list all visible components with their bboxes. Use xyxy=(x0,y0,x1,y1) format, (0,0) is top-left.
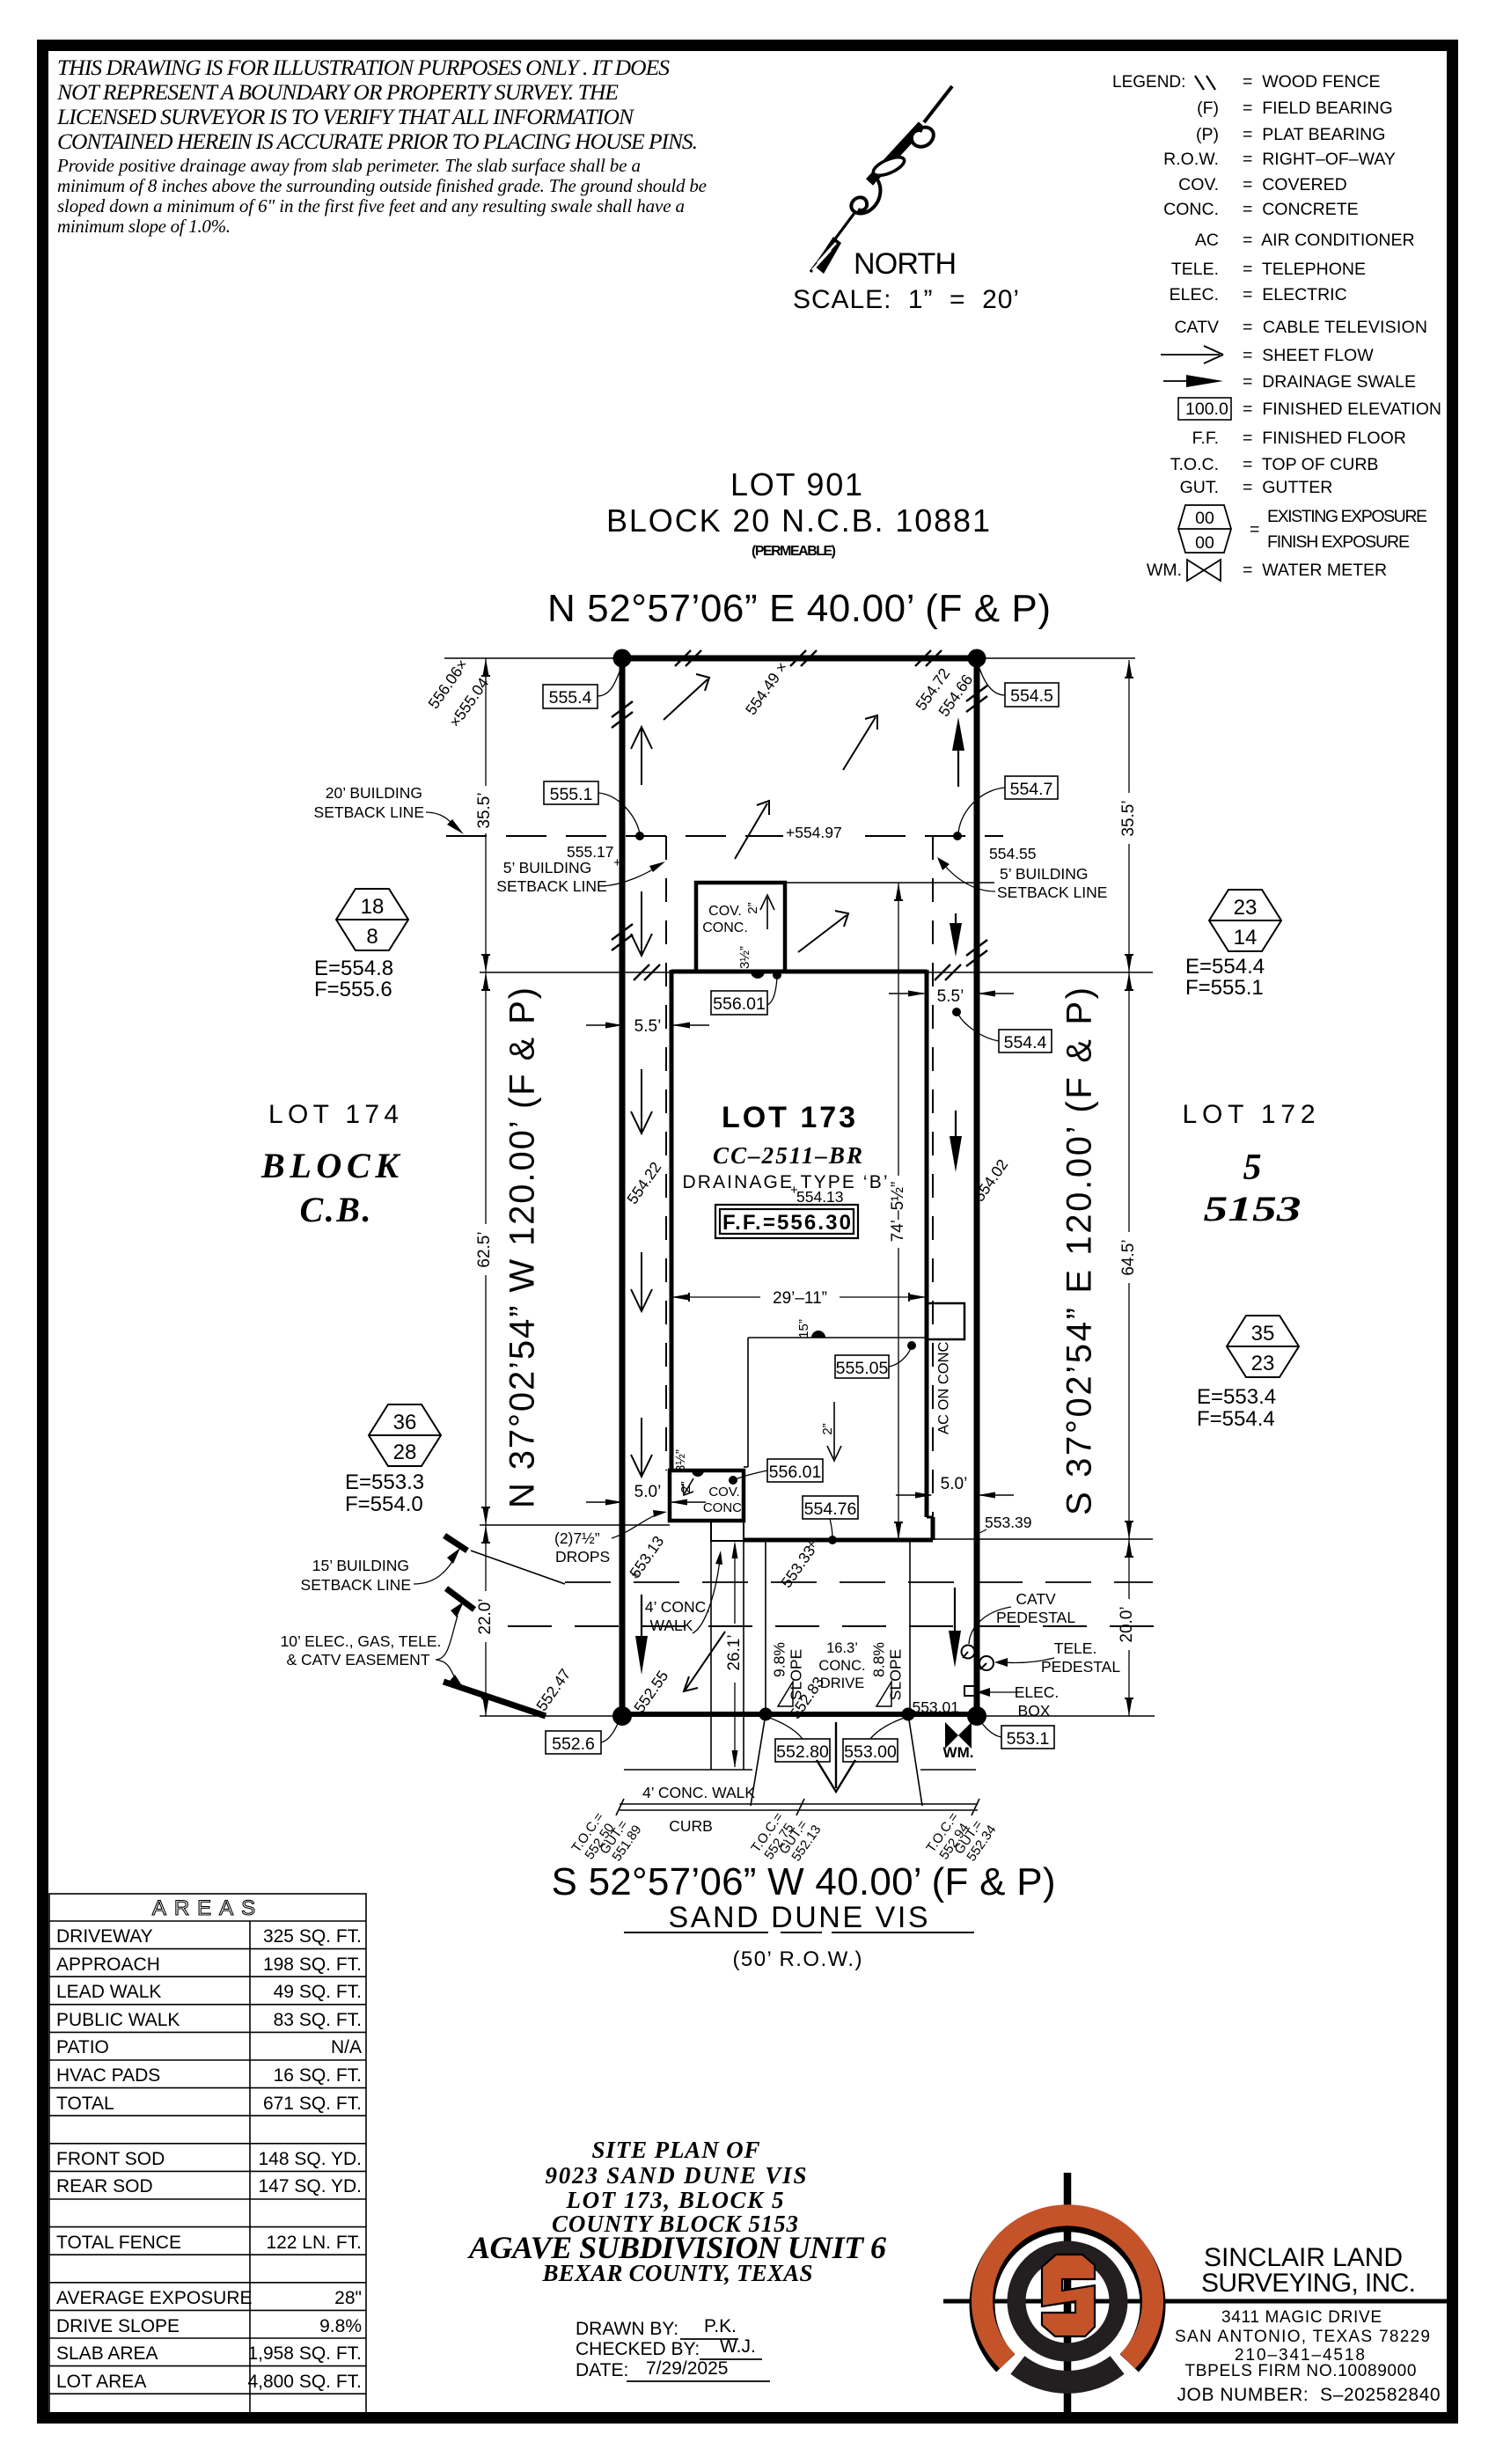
svg-text:00: 00 xyxy=(1195,509,1214,528)
svg-text:4’ CONC. WALK: 4’ CONC. WALK xyxy=(642,1784,755,1801)
svg-text:5.0’: 5.0’ xyxy=(634,1483,662,1501)
svg-text:CONC.: CONC. xyxy=(1163,200,1219,219)
svg-text:P.K.: P.K. xyxy=(704,2316,737,2336)
svg-text:DRAWN BY:: DRAWN BY: xyxy=(576,2319,678,2339)
svg-text:LOT 172: LOT 172 xyxy=(1183,1100,1316,1129)
svg-text:AC ON CONC.: AC ON CONC. xyxy=(935,1338,951,1434)
svg-text:15”: 15” xyxy=(796,1319,811,1338)
svg-text:E=554.4: E=554.4 xyxy=(1185,955,1265,979)
svg-text:CHECKED BY:: CHECKED BY: xyxy=(576,2339,700,2359)
svg-text:minimum of 8 inches above the: minimum of 8 inches above the surroundin… xyxy=(57,175,707,196)
svg-text:554.76: 554.76 xyxy=(804,1500,857,1519)
svg-text:DATE:: DATE: xyxy=(576,2360,628,2380)
svg-text:BOX: BOX xyxy=(1018,1702,1051,1720)
svg-text:555.17: 555.17 xyxy=(567,843,614,861)
svg-text:35.5’: 35.5’ xyxy=(1119,800,1138,836)
svg-text:2”: 2” xyxy=(678,1481,693,1492)
svg-text:= WATER METER: = WATER METER xyxy=(1243,561,1387,580)
svg-text:SCALE: 1” = 20’: SCALE: 1” = 20’ xyxy=(793,285,1019,314)
svg-text:TELE.: TELE. xyxy=(1054,1639,1097,1657)
svg-text:8: 8 xyxy=(366,925,378,949)
svg-text:18: 18 xyxy=(361,895,385,919)
svg-text:SETBACK LINE: SETBACK LINE xyxy=(496,877,606,895)
svg-text:= ELECTRIC: = ELECTRIC xyxy=(1243,285,1347,304)
svg-text:DROPS: DROPS xyxy=(555,1548,610,1566)
svg-text:COV.: COV. xyxy=(708,904,742,919)
svg-text:SETBACK LINE: SETBACK LINE xyxy=(301,1576,411,1594)
svg-text:CATV: CATV xyxy=(1016,1590,1056,1608)
svg-text:R.O.W.: R.O.W. xyxy=(1163,150,1219,169)
svg-text:9.8%: 9.8% xyxy=(319,2316,362,2336)
svg-text:PEDESTAL: PEDESTAL xyxy=(1041,1658,1120,1676)
svg-text:E=553.4: E=553.4 xyxy=(1197,1385,1276,1409)
svg-text:3½”: 3½” xyxy=(673,1449,688,1472)
svg-text:= AIR CONDITIONER: = AIR CONDITIONER xyxy=(1243,231,1415,250)
svg-text:35: 35 xyxy=(1251,1322,1275,1346)
svg-text:Provide positive drainage away: Provide positive drainage away from slab… xyxy=(56,155,641,176)
svg-text:20’ BUILDING: 20’ BUILDING xyxy=(326,784,422,802)
svg-text:= RIGHT–OF–WAY: = RIGHT–OF–WAY xyxy=(1243,150,1396,169)
svg-text:APPROACH: APPROACH xyxy=(56,1954,160,1975)
svg-text:TELE.: TELE. xyxy=(1171,260,1219,279)
svg-text:= SHEET FLOW: = SHEET FLOW xyxy=(1243,346,1374,365)
svg-text:20.0’: 20.0’ xyxy=(1118,1606,1136,1642)
svg-text:SITE PLAN OF: SITE PLAN OF xyxy=(592,2137,760,2163)
svg-text:555.05: 555.05 xyxy=(836,1359,889,1378)
svg-text:10’ ELEC., GAS, TELE.: 10’ ELEC., GAS, TELE. xyxy=(281,1632,442,1650)
svg-text:GUT.: GUT. xyxy=(1180,478,1219,497)
svg-text:FINISH EXPOSURE: FINISH EXPOSURE xyxy=(1267,532,1410,552)
svg-text:SURVEYING, INC.: SURVEYING, INC. xyxy=(1201,2269,1416,2298)
svg-text:LICENSED SURVEYOR IS TO VERIFY: LICENSED SURVEYOR IS TO VERIFY THAT ALL … xyxy=(56,104,635,129)
svg-text:LOT 173: LOT 173 xyxy=(722,1101,855,1134)
svg-text:= TELEPHONE: = TELEPHONE xyxy=(1243,260,1366,279)
svg-text:CONC.: CONC. xyxy=(702,920,748,935)
svg-text:3½”: 3½” xyxy=(737,946,752,969)
svg-text:555.4: 555.4 xyxy=(549,688,592,708)
svg-text:9.8%: 9.8% xyxy=(771,1642,788,1677)
svg-text:554.4: 554.4 xyxy=(1004,1033,1047,1052)
svg-text:= DRAINAGE SWALE: = DRAINAGE SWALE xyxy=(1243,372,1416,392)
svg-text:S 37°02’54” E 120.00’ (F & P): S 37°02’54” E 120.00’ (F & P) xyxy=(1060,987,1099,1515)
svg-text:5153: 5153 xyxy=(1204,1189,1302,1228)
svg-text:LOT 174: LOT 174 xyxy=(268,1100,399,1129)
svg-text:7/29/2025: 7/29/2025 xyxy=(646,2358,728,2379)
svg-text:16 SQ. FT.: 16 SQ. FT. xyxy=(274,2065,362,2086)
svg-text:= GUTTER: = GUTTER xyxy=(1243,478,1332,497)
svg-text:= CABLE TELEVISION: = CABLE TELEVISION xyxy=(1243,318,1427,337)
svg-text:N 52°57’06” E 40.00’ (F & P): N 52°57’06” E 40.00’ (F & P) xyxy=(547,587,1051,630)
svg-text:LOT 173, BLOCK 5: LOT 173, BLOCK 5 xyxy=(566,2187,784,2213)
svg-text:5’ BUILDING: 5’ BUILDING xyxy=(503,859,592,876)
svg-text:F.F.: F.F. xyxy=(1192,429,1219,448)
svg-text:EXISTING EXPOSURE: EXISTING EXPOSURE xyxy=(1267,507,1427,526)
svg-text:TBPELS FIRM NO.10089000: TBPELS FIRM NO.10089000 xyxy=(1185,2362,1417,2380)
svg-text:148 SQ. YD.: 148 SQ. YD. xyxy=(258,2149,362,2169)
svg-text:REAR SOD: REAR SOD xyxy=(56,2176,153,2196)
svg-text:TOTAL: TOTAL xyxy=(56,2094,114,2114)
svg-text:+554.97: +554.97 xyxy=(786,824,842,841)
svg-text:=: = xyxy=(1250,520,1259,539)
svg-text:WALK: WALK xyxy=(650,1617,693,1634)
svg-text:DRIVE SLOPE: DRIVE SLOPE xyxy=(56,2316,180,2336)
svg-text:83 SQ. FT.: 83 SQ. FT. xyxy=(274,2010,362,2030)
svg-text:62.5’: 62.5’ xyxy=(475,1231,494,1267)
svg-text:671 SQ. FT.: 671 SQ. FT. xyxy=(263,2094,362,2114)
svg-text:5.5’: 5.5’ xyxy=(634,1017,662,1036)
svg-text:22.0’: 22.0’ xyxy=(476,1598,495,1634)
svg-text:100.0: 100.0 xyxy=(1185,400,1228,419)
svg-text:5.5’: 5.5’ xyxy=(937,987,964,1006)
svg-text:555.1: 555.1 xyxy=(550,785,593,804)
svg-text:CONC.: CONC. xyxy=(818,1658,865,1674)
svg-text:minimum slope of 1.0%.: minimum slope of 1.0%. xyxy=(57,216,231,237)
svg-text:AC: AC xyxy=(1195,231,1219,250)
svg-text:SLOPE: SLOPE xyxy=(887,1649,905,1700)
svg-text:(PERMEABLE): (PERMEABLE) xyxy=(752,544,836,559)
svg-text:14: 14 xyxy=(1234,926,1258,950)
svg-text:& CATV EASEMENT: & CATV EASEMENT xyxy=(286,1651,429,1668)
svg-text:HVAC PADS: HVAC PADS xyxy=(56,2065,160,2086)
svg-text:23: 23 xyxy=(1234,896,1258,920)
svg-text:15’ BUILDING: 15’ BUILDING xyxy=(312,1557,409,1574)
svg-text:556.01: 556.01 xyxy=(769,1463,822,1482)
svg-text:SETBACK LINE: SETBACK LINE xyxy=(997,884,1107,901)
svg-text:COV.: COV. xyxy=(708,1485,739,1500)
svg-text:PATIO: PATIO xyxy=(56,2037,109,2057)
svg-text:554.13: 554.13 xyxy=(796,1188,844,1206)
svg-text:+: + xyxy=(632,1568,640,1583)
svg-text:LOT 901: LOT 901 xyxy=(730,466,862,502)
svg-text:SLAB AREA: SLAB AREA xyxy=(56,2343,158,2364)
svg-text:4,800 SQ. FT.: 4,800 SQ. FT. xyxy=(247,2372,362,2392)
svg-text:sloped down a minimum of 6" in: sloped down a minimum of 6" in the first… xyxy=(57,195,685,216)
svg-text:CONTAINED HEREIN IS ACCURATE P: CONTAINED HEREIN IS ACCURATE PRIOR TO PL… xyxy=(57,128,698,154)
svg-text:554.5: 554.5 xyxy=(1010,686,1053,706)
svg-text:122 LN. FT.: 122 LN. FT. xyxy=(266,2233,362,2253)
svg-text:NORTH: NORTH xyxy=(854,247,957,281)
svg-text:FRONT SOD: FRONT SOD xyxy=(56,2149,165,2169)
svg-text:COV.: COV. xyxy=(1178,175,1219,194)
svg-text:DRAINAGE TYPE ‘B’: DRAINAGE TYPE ‘B’ xyxy=(683,1172,888,1192)
svg-text:5’ BUILDING: 5’ BUILDING xyxy=(1000,865,1089,883)
svg-text:F=555.6: F=555.6 xyxy=(314,978,392,1001)
svg-text:N/A: N/A xyxy=(331,2037,362,2057)
svg-text:23: 23 xyxy=(1251,1352,1275,1375)
svg-text:4’ CONC.: 4’ CONC. xyxy=(645,1598,710,1616)
svg-text:28: 28 xyxy=(393,1441,417,1464)
svg-text:F=554.0: F=554.0 xyxy=(345,1492,423,1516)
svg-text:AREAS: AREAS xyxy=(152,1896,263,1920)
svg-text:BLOCK: BLOCK xyxy=(260,1146,400,1185)
svg-text:WM.: WM. xyxy=(943,1744,974,1761)
svg-text:(F): (F) xyxy=(1197,99,1219,118)
svg-text:+: + xyxy=(613,855,621,870)
svg-text:= TOP OF CURB: = TOP OF CURB xyxy=(1243,455,1378,474)
svg-text:74’–5½”: 74’–5½” xyxy=(889,1182,907,1243)
svg-text:35.5’: 35.5’ xyxy=(475,792,494,828)
svg-text:LEAD WALK: LEAD WALK xyxy=(56,1982,161,2002)
svg-text:= WOOD FENCE: = WOOD FENCE xyxy=(1243,72,1381,92)
svg-text:×: × xyxy=(808,1537,816,1552)
svg-text:552.6: 552.6 xyxy=(552,1734,595,1754)
svg-text:SETBACK LINE: SETBACK LINE xyxy=(314,803,424,821)
svg-text:= FINISHED ELEVATION: = FINISHED ELEVATION xyxy=(1243,400,1441,419)
svg-text:JOB NUMBER: S–202582840: JOB NUMBER: S–202582840 xyxy=(1177,2385,1441,2405)
svg-text:5.0’: 5.0’ xyxy=(941,1475,968,1493)
svg-text:= CONCRETE: = CONCRETE xyxy=(1243,200,1359,219)
svg-text:N 37°02’54” W 120.00’ (F & P): N 37°02’54” W 120.00’ (F & P) xyxy=(503,987,542,1508)
svg-text:553.00: 553.00 xyxy=(844,1742,897,1762)
svg-text:ELEC.: ELEC. xyxy=(1015,1683,1060,1701)
svg-text:E=554.8: E=554.8 xyxy=(314,957,393,980)
svg-text:= PLAT BEARING: = PLAT BEARING xyxy=(1243,125,1385,144)
svg-text:PUBLIC WALK: PUBLIC WALK xyxy=(56,2010,180,2030)
svg-text:553.01: 553.01 xyxy=(912,1698,959,1716)
svg-text:CATV: CATV xyxy=(1174,318,1219,337)
svg-text:SLOPE: SLOPE xyxy=(788,1649,805,1700)
svg-text:THIS DRAWING IS FOR ILLUSTRATI: THIS DRAWING IS FOR ILLUSTRATION PURPOSE… xyxy=(57,55,670,80)
svg-text:ELEC.: ELEC. xyxy=(1170,285,1219,304)
svg-text:36: 36 xyxy=(393,1411,417,1434)
svg-text:(2)7½”: (2)7½” xyxy=(554,1529,600,1547)
svg-text:2”: 2” xyxy=(745,902,760,913)
svg-text:NOT REPRESENT A BOUNDARY OR PR: NOT REPRESENT A BOUNDARY OR PROPERTY SUR… xyxy=(56,79,619,105)
svg-text:(P): (P) xyxy=(1196,125,1219,144)
svg-text:CONC.: CONC. xyxy=(703,1500,745,1515)
svg-text:= FIELD BEARING: = FIELD BEARING xyxy=(1243,99,1393,118)
svg-text:3411 MAGIC DRIVE: 3411 MAGIC DRIVE xyxy=(1221,2308,1382,2327)
svg-text:LEGEND:: LEGEND: xyxy=(1112,73,1185,92)
svg-text:325 SQ. FT.: 325 SQ. FT. xyxy=(263,1926,362,1947)
svg-text:00: 00 xyxy=(1195,533,1214,553)
svg-text:E=553.3: E=553.3 xyxy=(345,1470,424,1494)
svg-text:(50’ R.O.W.): (50’ R.O.W.) xyxy=(733,1947,862,1971)
svg-text:8.8%: 8.8% xyxy=(870,1642,888,1677)
svg-text:16.3’: 16.3’ xyxy=(826,1640,858,1656)
svg-text:PEDESTAL: PEDESTAL xyxy=(996,1609,1075,1626)
svg-text:SAND DUNE VIS: SAND DUNE VIS xyxy=(669,1901,928,1934)
svg-text:TOTAL FENCE: TOTAL FENCE xyxy=(56,2233,181,2253)
svg-text:= COVERED: = COVERED xyxy=(1243,175,1347,194)
svg-text:554.55: 554.55 xyxy=(989,845,1037,862)
svg-text:WM.: WM. xyxy=(1147,561,1182,580)
svg-text:198 SQ. FT.: 198 SQ. FT. xyxy=(263,1954,362,1975)
svg-text:DRIVEWAY: DRIVEWAY xyxy=(56,1926,153,1947)
svg-text:W.J.: W.J. xyxy=(720,2336,756,2357)
svg-text:552.80: 552.80 xyxy=(776,1742,829,1762)
svg-text:= FINISHED FLOOR: = FINISHED FLOOR xyxy=(1243,429,1406,448)
svg-text:554.7: 554.7 xyxy=(1010,780,1053,799)
svg-text:1,958 SQ. FT.: 1,958 SQ. FT. xyxy=(247,2343,362,2364)
svg-text:553.39: 553.39 xyxy=(985,1514,1032,1531)
svg-text:BEXAR COUNTY, TEXAS: BEXAR COUNTY, TEXAS xyxy=(542,2260,813,2286)
svg-text:28": 28" xyxy=(334,2288,362,2308)
svg-text:64.5’: 64.5’ xyxy=(1119,1239,1138,1275)
svg-text:F=554.4: F=554.4 xyxy=(1197,1407,1275,1431)
svg-text:DRIVE: DRIVE xyxy=(820,1676,864,1691)
svg-text:26.1’: 26.1’ xyxy=(725,1634,744,1670)
svg-text:2”: 2” xyxy=(820,1423,835,1434)
svg-text:553.1: 553.1 xyxy=(1007,1729,1050,1749)
svg-text:LOT AREA: LOT AREA xyxy=(56,2372,146,2392)
svg-text:AVERAGE EXPOSURE: AVERAGE EXPOSURE xyxy=(56,2288,253,2308)
svg-text:5: 5 xyxy=(1243,1148,1262,1188)
svg-text:CURB: CURB xyxy=(669,1817,713,1835)
svg-text:T.O.C.: T.O.C. xyxy=(1170,455,1219,474)
svg-text:556.01: 556.01 xyxy=(713,994,766,1014)
svg-text:49 SQ. FT.: 49 SQ. FT. xyxy=(274,1982,362,2002)
svg-text:F=555.1: F=555.1 xyxy=(1185,976,1264,1000)
svg-text:SAN ANTONIO, TEXAS 78229: SAN ANTONIO, TEXAS 78229 xyxy=(1175,2328,1430,2346)
svg-text:147 SQ. YD.: 147 SQ. YD. xyxy=(258,2176,362,2196)
svg-text:29’–11”: 29’–11” xyxy=(773,1289,827,1308)
svg-text:S 52°57’06” W 40.00’ (F & P): S 52°57’06” W 40.00’ (F & P) xyxy=(552,1860,1056,1903)
